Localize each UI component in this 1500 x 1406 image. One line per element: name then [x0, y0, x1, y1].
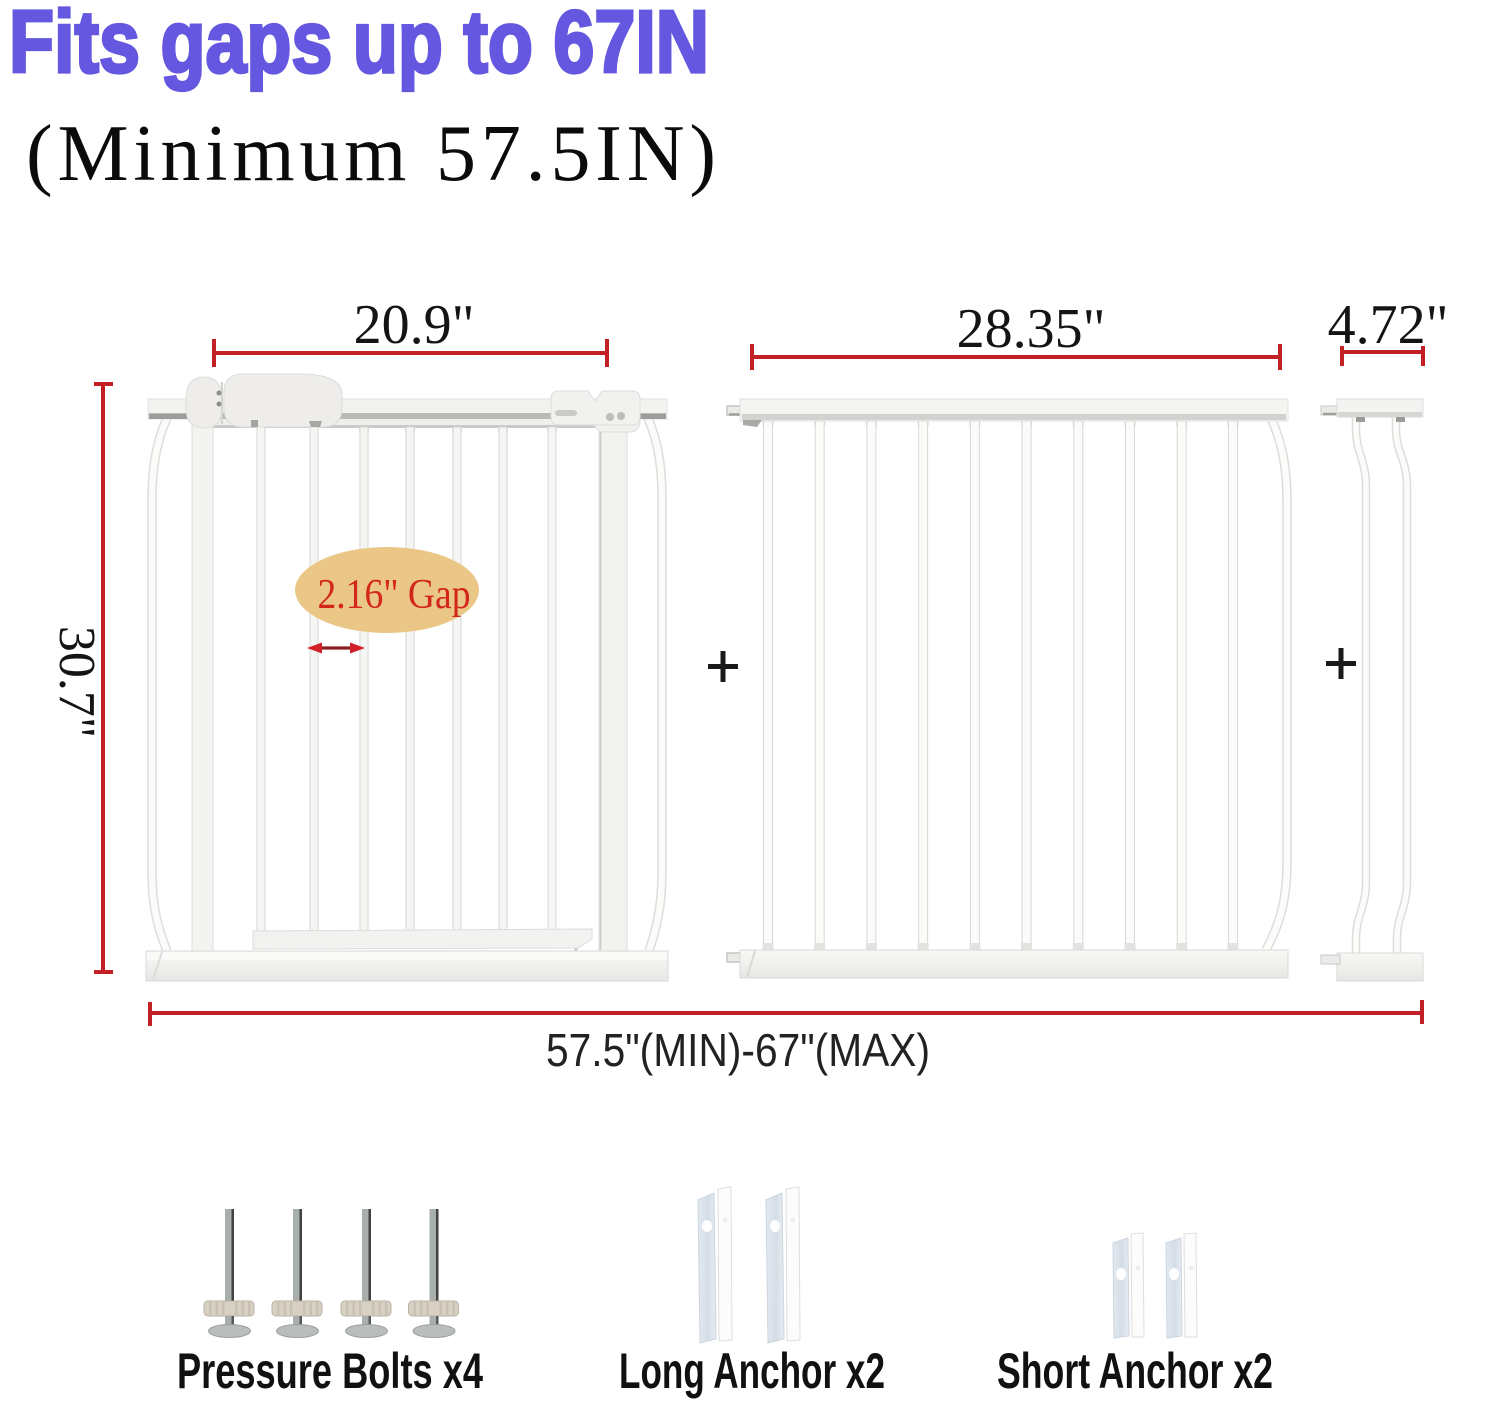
- svg-text:2.16" Gap: 2.16" Gap: [318, 572, 471, 618]
- svg-text:57.5"(MIN)-67"(MAX): 57.5"(MIN)-67"(MAX): [546, 1024, 930, 1076]
- svg-text:4.72": 4.72": [1328, 294, 1449, 356]
- svg-text:28.35": 28.35": [957, 298, 1106, 360]
- svg-text:30.7": 30.7": [48, 626, 105, 738]
- svg-text:Fits gaps up to 67IN: Fits gaps up to 67IN: [9, 0, 709, 91]
- svg-text:Pressure Bolts x4: Pressure Bolts x4: [177, 1343, 483, 1399]
- svg-text:Short Anchor x2: Short Anchor x2: [997, 1343, 1273, 1399]
- svg-text:Long Anchor x2: Long Anchor x2: [619, 1343, 885, 1399]
- svg-text:20.9": 20.9": [354, 294, 475, 356]
